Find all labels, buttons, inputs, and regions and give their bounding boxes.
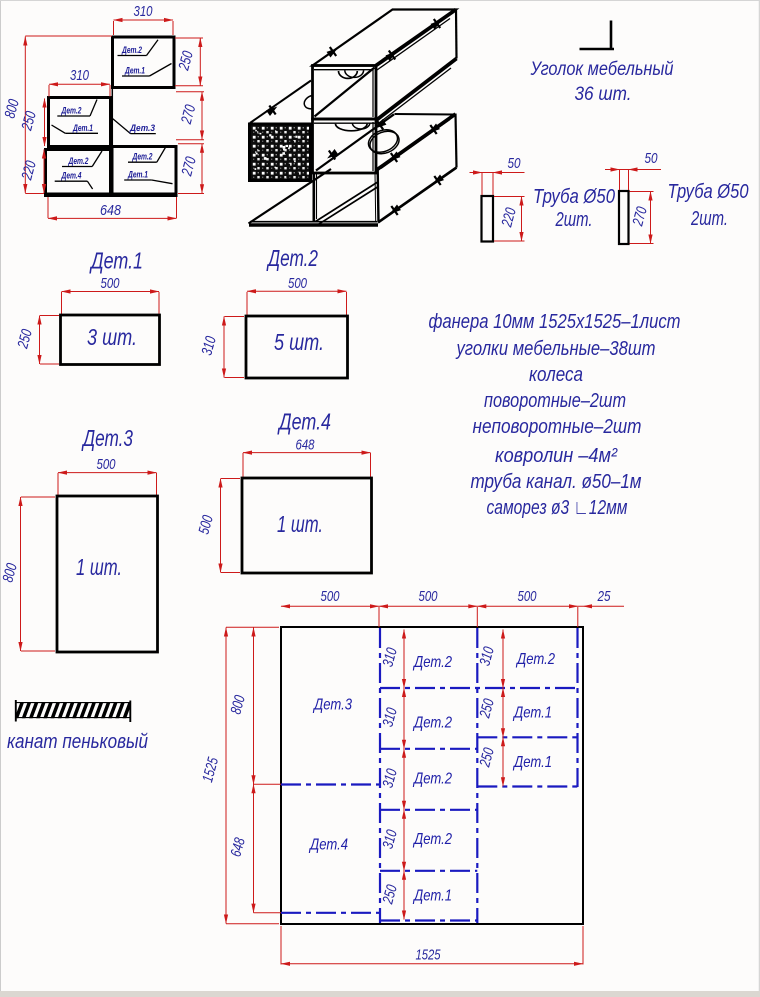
svg-text:Дет.1: Дет.1 [127, 170, 148, 181]
svg-text:50: 50 [645, 150, 659, 167]
svg-text:2шт.: 2шт. [555, 209, 593, 231]
svg-text:310: 310 [134, 3, 153, 20]
svg-text:Дет.4: Дет.4 [308, 837, 348, 854]
svg-text:1 шт.: 1 шт. [76, 554, 122, 580]
svg-text:Дет.2: Дет.2 [68, 156, 89, 167]
svg-text:500: 500 [518, 588, 537, 605]
svg-text:Дет.4: Дет.4 [277, 409, 331, 435]
svg-text:канат пеньковый: канат пеньковый [7, 731, 148, 753]
svg-text:500: 500 [419, 588, 438, 605]
svg-text:Дет.1: Дет.1 [512, 705, 552, 722]
svg-text:Дет.2: Дет.2 [412, 654, 452, 671]
svg-text:Дет.3: Дет.3 [312, 697, 352, 714]
svg-text:2шт.: 2шт. [690, 208, 728, 230]
svg-text:Дет.3: Дет.3 [81, 425, 133, 451]
svg-text:50: 50 [508, 155, 522, 172]
svg-text:648: 648 [100, 202, 122, 219]
svg-text:труба канал. ø50–1м: труба канал. ø50–1м [471, 471, 642, 493]
svg-text:310: 310 [70, 67, 89, 84]
svg-text:Дет.2: Дет.2 [412, 771, 452, 788]
svg-text:Дет.3: Дет.3 [129, 123, 156, 134]
svg-text:уголки мебельные–38шт: уголки мебельные–38шт [455, 338, 656, 360]
svg-text:фанера 10мм 1525х1525–1лист: фанера 10мм 1525х1525–1лист [429, 311, 681, 333]
svg-text:36 шт.: 36 шт. [575, 84, 632, 105]
svg-text:Дет.1: Дет.1 [72, 123, 93, 134]
svg-text:Дет.1: Дет.1 [412, 888, 452, 905]
svg-text:500: 500 [101, 275, 120, 292]
svg-text:500: 500 [97, 456, 116, 473]
svg-text:500: 500 [288, 275, 307, 292]
svg-text:Дет.2: Дет.2 [515, 651, 555, 668]
svg-text:Дет.2: Дет.2 [412, 715, 452, 732]
svg-text:Дет.2: Дет.2 [132, 152, 153, 163]
svg-text:Дет.2: Дет.2 [121, 45, 142, 56]
svg-text:поворотные–2шт: поворотные–2шт [484, 390, 626, 412]
svg-text:колеса: колеса [529, 364, 583, 386]
svg-text:Труба Ø50: Труба Ø50 [668, 181, 749, 203]
svg-text:ковролин –4м²: ковролин –4м² [495, 445, 618, 467]
svg-text:Дет.2: Дет.2 [412, 831, 452, 848]
svg-text:Дет.2: Дет.2 [266, 245, 318, 271]
svg-text:648: 648 [296, 437, 315, 454]
svg-text:Дет.2: Дет.2 [61, 106, 82, 117]
svg-text:500: 500 [321, 588, 340, 605]
svg-text:Дет.1: Дет.1 [89, 248, 143, 274]
svg-text:3 шт.: 3 шт. [87, 324, 137, 350]
svg-text:Дет.1: Дет.1 [124, 66, 145, 77]
svg-text:неповоротные–2шт: неповоротные–2шт [473, 416, 642, 438]
svg-text:1525: 1525 [416, 947, 441, 964]
svg-text:Уголок мебельный: Уголок мебельный [530, 59, 674, 80]
svg-text:Дет.4: Дет.4 [61, 171, 82, 182]
svg-text:Дет.1: Дет.1 [512, 754, 552, 771]
svg-text:Труба Ø50: Труба Ø50 [533, 186, 615, 208]
svg-text:25: 25 [597, 588, 611, 605]
svg-text:5 шт.: 5 шт. [274, 329, 324, 355]
svg-text:1 шт.: 1 шт. [277, 511, 323, 537]
svg-text:саморез ø3 ∟12мм: саморез ø3 ∟12мм [487, 497, 628, 519]
